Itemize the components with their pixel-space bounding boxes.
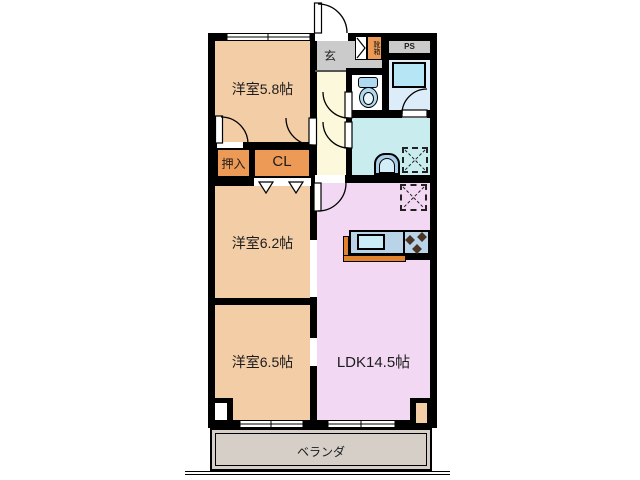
shoe-door-chevron-icon (357, 38, 365, 58)
oshiire-label: 押入 (216, 155, 251, 172)
floor-plan: 洋室5.8帖 洋室6.2帖 洋室6.5帖 LDK14.5帖 押入 CL 玄 靴箱… (0, 0, 640, 480)
window-bedroom58-top (227, 33, 310, 41)
closet-folding-door-icon (259, 182, 273, 193)
washroom-door-leaf (345, 122, 352, 148)
closet-label: CL (253, 153, 311, 170)
pipe-space-label: PS (389, 42, 430, 51)
ldk-label: LDK14.5帖 (317, 351, 430, 372)
entrance-door-arc (318, 4, 347, 33)
bedroom-5-8-label: 洋室5.8帖 (215, 79, 310, 99)
stove-burners-icon (405, 232, 427, 254)
bedroom-6-2-label: 洋室6.2帖 (215, 233, 310, 253)
door-window-symbols (0, 0, 640, 480)
entrance-door-leaf (315, 3, 322, 33)
washing-machine-x-icon (405, 150, 425, 170)
bathroom-door-leaf (402, 110, 427, 117)
oshiire-door-leaf (216, 116, 223, 143)
ldk-door-leaf (314, 183, 321, 211)
window-ldk-bottom (328, 420, 395, 428)
toilet-door-leaf (345, 92, 352, 118)
shoe-cabinet-label: 靴箱 (370, 38, 380, 58)
closet-folding-door-icon (289, 182, 303, 193)
entrance-label: 玄 (317, 47, 343, 64)
window-bedroom65-bottom (240, 420, 303, 428)
bedroom-6-5-label: 洋室6.5帖 (215, 352, 310, 372)
oshiire-door-arc (221, 117, 248, 144)
bedroom58-door-leaf (309, 118, 317, 145)
refrigerator-x-icon (403, 187, 424, 208)
veranda-label: ベランダ (210, 443, 432, 460)
ldk-door-arc (318, 183, 346, 211)
